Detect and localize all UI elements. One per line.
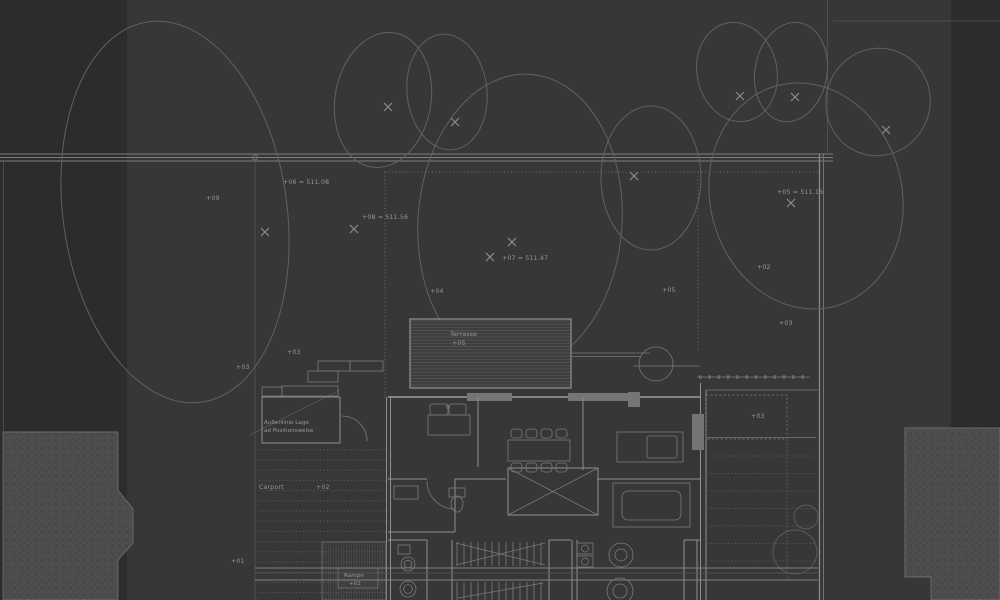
spot-level: +02 [757, 264, 771, 271]
terrace [410, 319, 571, 388]
spot-level: +07 = 511.47 [502, 255, 548, 262]
background [0, 0, 1000, 600]
spot-level: +03 [236, 364, 250, 371]
terrace-label: Terrasse [449, 331, 477, 338]
spot-level: +03 [751, 413, 765, 420]
door-sill [467, 393, 512, 401]
spot-level: +03 [779, 320, 793, 327]
neighbor-building-left [3, 432, 133, 600]
storage-box-label-line2: ad Positionsweise [264, 428, 314, 434]
spot-level: +03 [287, 349, 301, 356]
drawing-background [0, 0, 1000, 600]
ramp-label: Rampe [344, 573, 364, 579]
neighbor-building-right [905, 428, 1000, 600]
spot-level: +06 = 511.08 [283, 179, 329, 186]
terrace-level: +05 [452, 340, 466, 347]
ramp [322, 542, 386, 600]
door-sill [568, 393, 637, 401]
pergola-deck [708, 444, 815, 576]
site-plan-screenshot: +09 +06 = 511.08 +08 = 511.56 +07 = 511.… [0, 0, 1000, 600]
site-plan-canvas: +09 +06 = 511.08 +08 = 511.56 +07 = 511.… [0, 0, 1000, 600]
carport-level: +02 [316, 484, 330, 491]
spot-level: +08 = 511.56 [362, 214, 408, 221]
spot-level: +01 [231, 558, 245, 565]
spot-level: +05 [662, 287, 676, 294]
spot-level: +05 = 511.16 [777, 189, 823, 196]
spot-level: +04 [430, 288, 444, 295]
spot-level: +09 [206, 195, 220, 202]
carport-label: Carport [259, 484, 284, 491]
wall-pillar [628, 392, 640, 407]
ramp-level: +02 [349, 581, 361, 587]
storage-box-label-line1: Außenlinie Lage [264, 420, 309, 426]
wall-pillar [692, 414, 704, 450]
